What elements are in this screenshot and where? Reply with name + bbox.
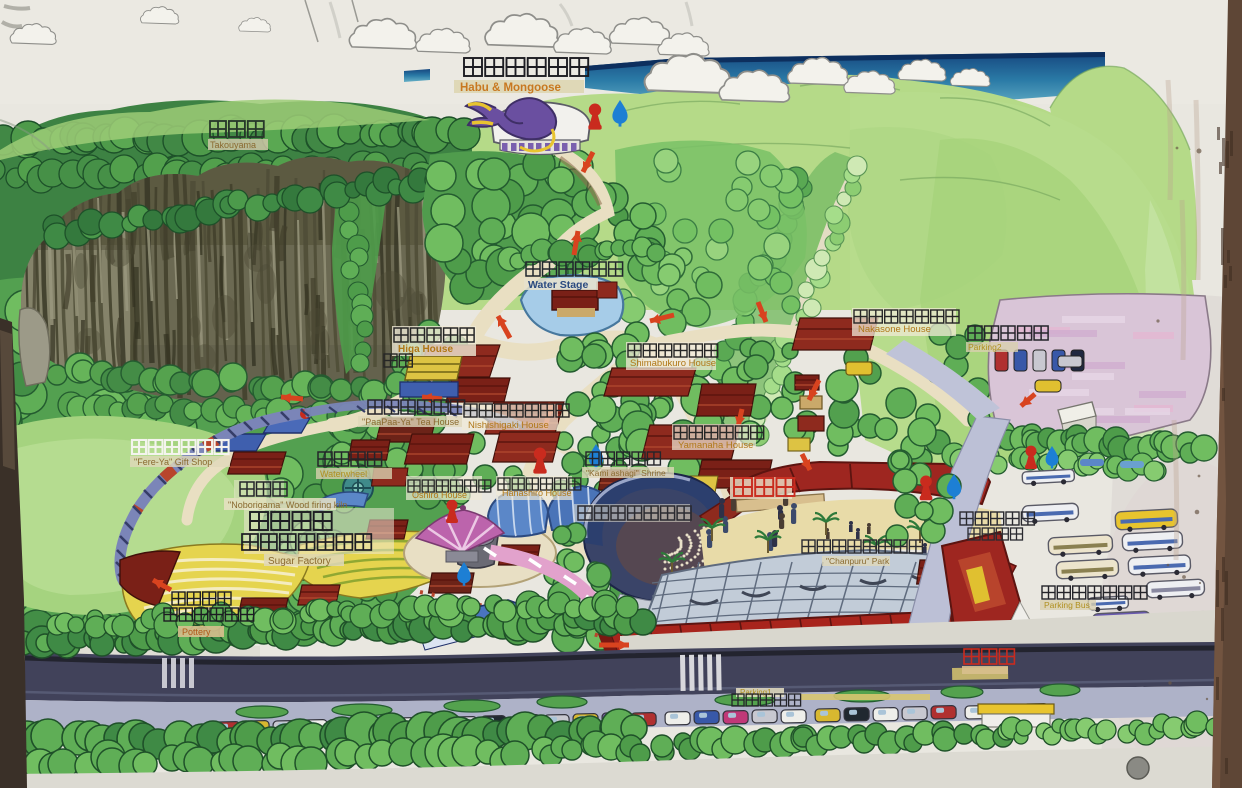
svg-text:Takouyama: Takouyama bbox=[210, 140, 256, 150]
svg-text:Parking Bus: Parking Bus bbox=[1044, 600, 1090, 610]
svg-text:Parking2: Parking2 bbox=[968, 342, 1002, 352]
svg-text:Hanashiro House: Hanashiro House bbox=[502, 488, 572, 498]
svg-text:"Kami ashagi" Shrine: "Kami ashagi" Shrine bbox=[586, 468, 666, 478]
svg-text:Waterwheel: Waterwheel bbox=[320, 469, 367, 479]
svg-text:"Chanpuru" Park: "Chanpuru" Park bbox=[826, 556, 890, 566]
svg-text:Nakasone House: Nakasone House bbox=[858, 324, 931, 335]
svg-text:Nishishigaki House: Nishishigaki House bbox=[468, 420, 549, 431]
svg-text:Pottery: Pottery bbox=[182, 627, 211, 637]
svg-text:Habu & Mongoose: Habu & Mongoose bbox=[460, 82, 561, 94]
svg-text:Shimabukuro House: Shimabukuro House bbox=[630, 358, 716, 369]
svg-text:Sugar Factory: Sugar Factory bbox=[268, 556, 331, 567]
svg-text:"PaaPaa-Ya" Tea House: "PaaPaa-Ya" Tea House bbox=[362, 417, 459, 427]
svg-text:"Fere-Ya" Gift Shop: "Fere-Ya" Gift Shop bbox=[134, 457, 212, 467]
svg-text:Oshiro House: Oshiro House bbox=[412, 490, 467, 500]
svg-text:Water Stage: Water Stage bbox=[528, 279, 588, 291]
svg-text:Parking1: Parking1 bbox=[740, 688, 772, 697]
svg-text:Yamanaha House: Yamanaha House bbox=[678, 440, 753, 451]
